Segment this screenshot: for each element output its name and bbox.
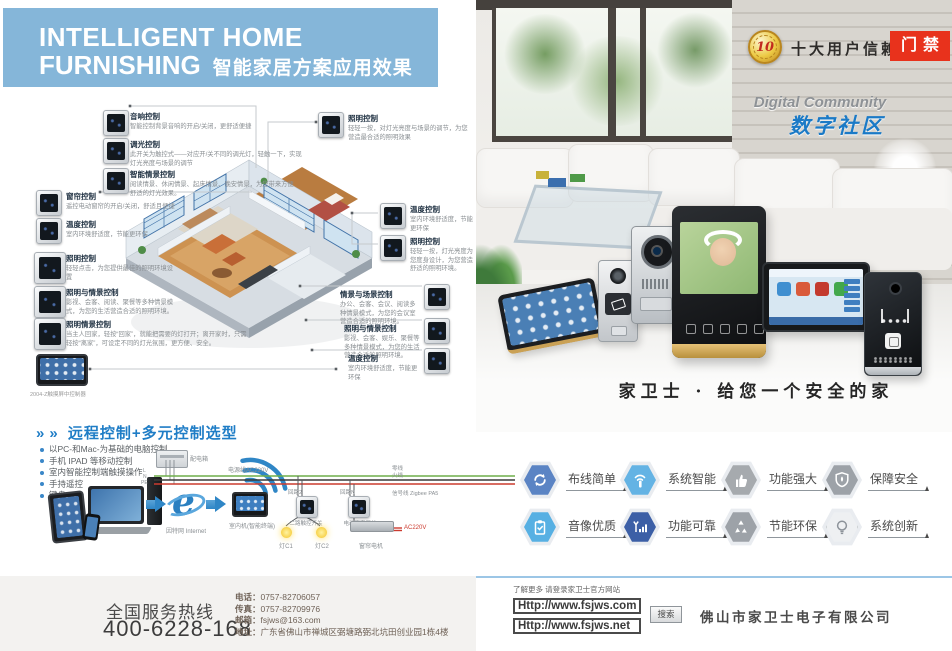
signal-icon: [631, 518, 649, 536]
book-stack: [548, 178, 566, 187]
tablet-caption: 2004-Z触摸屏中控制器: [30, 390, 120, 398]
annotation-title: 照明与情景控制: [66, 287, 184, 298]
switch-module: [424, 284, 450, 310]
feature-label: 系统智能: [666, 470, 724, 491]
contact-row: 电话：0757-82706057: [235, 592, 475, 604]
phase-pe-label: PE: [141, 480, 148, 486]
wire-end-label: 火线: [392, 471, 403, 479]
annotation-title: 情景与场景控制: [340, 289, 418, 300]
remote-section-title: »» 远程控制+多元控制选型: [36, 422, 238, 443]
bulb-icon: [833, 518, 851, 536]
wall-switch: [296, 496, 318, 518]
annotation: 情景与场景控制 办公、会客、会议、阅读多种情景模式，为您的会议室营造合适的照明环…: [340, 289, 418, 327]
lamp-icon: [316, 527, 327, 538]
annotation: 温度控制 室内环境舒适度，节能更环保: [66, 219, 186, 240]
access-control-tag: 门禁: [890, 31, 950, 61]
screen-toolbar: [769, 269, 863, 277]
lamp1-label: 灯C1: [274, 541, 298, 550]
chevrons-icon: »: [36, 425, 45, 442]
loop2-label: 回路2: [288, 488, 302, 496]
camera-icon: [889, 282, 902, 295]
search-button[interactable]: 搜索: [650, 606, 682, 623]
annotation-desc: 室内环境舒适度，节能更环保: [348, 365, 420, 382]
monitor-screen: [769, 269, 863, 325]
loopN-label: 回路N: [340, 488, 355, 496]
feature-label: 节能环保: [767, 517, 825, 538]
switch-module: [34, 318, 66, 350]
card-reader-panel: [605, 293, 631, 315]
feature-smart: 系统智能: [620, 460, 724, 500]
annotation-title: 温度控制: [348, 353, 420, 364]
living-room-photo: [476, 0, 952, 432]
hotline-number: 400-6228-168: [103, 616, 252, 642]
smart-touch-icon: [631, 471, 649, 489]
switch-module: [424, 348, 450, 374]
switch-module: [34, 252, 66, 284]
camera-icon: [610, 268, 626, 284]
feature-label: 音像优质: [566, 517, 624, 538]
book-stack: [570, 174, 585, 182]
annotation-desc: 室内环境舒适度，节能更环保: [410, 216, 474, 233]
switch1-label: 二路触控开关: [282, 519, 330, 527]
card-icon: [611, 298, 626, 311]
feature-reliable: 功能可靠: [620, 507, 724, 547]
switch-module: [103, 110, 129, 136]
call-button: [885, 333, 901, 349]
circular-arrows-icon: [531, 471, 549, 489]
annotation-title: 照明控制: [410, 236, 474, 247]
annotation: 照明与情景控制 影视、会客、阅读、聚餐等多种情景模式，为您的生活营造合适的照明环…: [66, 287, 184, 316]
digital-community-zh: 数字社区: [782, 110, 892, 140]
speaker-grill: [642, 279, 668, 289]
visitor-face: [710, 238, 736, 266]
wiring-diagram: [140, 460, 520, 540]
shield-icon: [833, 471, 851, 489]
annotation-desc: 轻轻一按，对灯光亮度与场景的调节，为您营造最合适的照明效果: [348, 125, 473, 142]
annotation-title: 音响控制: [130, 111, 295, 122]
wire-end-label: 信号线 Zigbee PA5: [392, 489, 438, 497]
annotation: 音响控制 智能控制背景音响的开启/关闭，更舒适便捷: [130, 111, 295, 132]
switch-module: [424, 318, 450, 344]
side-buttons: [844, 279, 860, 312]
feature-label: 保障安全: [868, 470, 926, 491]
app-icons: [777, 282, 848, 296]
switch-module: [36, 190, 62, 216]
motor-label: 窗帘电机: [348, 541, 394, 550]
feature-powerful: 功能强大: [721, 460, 825, 500]
wall-switch: [348, 496, 370, 518]
annotation-title: 调光控制: [130, 139, 302, 150]
feature-label: 布线简单: [566, 470, 624, 491]
feature-wiring: 布线简单: [520, 460, 624, 500]
call-button: [611, 326, 627, 336]
monitor-screen: [680, 222, 758, 294]
feature-innovative: 系统创新: [822, 507, 926, 547]
lamp2-label: 灯C2: [310, 541, 334, 550]
speaker-grill: [873, 357, 913, 363]
feature-eco: 节能环保: [721, 507, 825, 547]
switch-module: [380, 235, 406, 261]
annotation: 温度控制 室内环境舒适度，节能更环保: [348, 353, 420, 382]
annotation-title: 智能情景控制: [130, 169, 295, 180]
ac-label: AC220V: [404, 525, 426, 531]
annotation: 调光控制 此开关为触控式——对应开/关不同的调光灯，轻触一下，实现灯光亮度与场景…: [130, 139, 302, 168]
feature-label: 功能强大: [767, 470, 825, 491]
company-name: 佛山市家卫士电子有限公司: [700, 606, 892, 626]
annotation-title: 照明情景控制: [66, 319, 251, 330]
annotation-desc: 室内环境舒适度，节能更环保: [66, 231, 186, 240]
chevrons-icon: »: [49, 425, 58, 442]
annotation-title: 窗帘控制: [66, 191, 196, 202]
website-url-com[interactable]: Http://www.fsjws.com: [513, 598, 641, 614]
annotation-desc: 智能控制背景音响的开启/关闭，更舒适便捷: [130, 123, 295, 132]
gold-base: [672, 344, 766, 358]
annotation-title: 照明与情景控制: [344, 323, 420, 334]
annotation-title: 照明控制: [348, 113, 473, 124]
switch-module: [318, 112, 344, 138]
clipboard-icon: [531, 518, 549, 536]
annotation: 照明控制 轻轻点击，为您提供最佳的照明环境设置: [66, 253, 176, 282]
thumbs-up-icon: [732, 471, 750, 489]
product-indoor-monitor-gold: [672, 206, 766, 358]
camera-lens: [651, 245, 663, 257]
screen-statusbar: [769, 317, 863, 325]
annotation-desc: 影视、会客、阅读、聚餐等多种情景模式，为您的生活营造合适的照明环境。: [66, 299, 184, 316]
website-url-net[interactable]: Http://www.fsjws.net: [513, 618, 641, 634]
feature-label: 功能可靠: [666, 517, 724, 538]
annotation-desc: 当主人回家，轻按“回家”，就能把需要的灯打开；离开家时，只需轻按“离家”，可设定…: [66, 331, 251, 348]
card-slot: [640, 297, 672, 311]
contact-row: 传真：0757-82709976: [235, 604, 475, 616]
window: [492, 8, 744, 142]
switch-module: [36, 218, 62, 244]
annotation-desc: 轻轻点击，为您提供最佳的照明环境设置: [66, 265, 176, 282]
contact-row: 地址：广东省佛山市禅城区弼塘路弼北坑田创业园1栋4楼: [235, 627, 475, 639]
bullet-item: 以PC-和Mac-为基础的电脑控制: [40, 444, 240, 456]
product-door-station-tall: [864, 272, 922, 376]
recycle-icon: [732, 518, 750, 536]
feature-audio-video: 音像优质: [520, 507, 624, 547]
annotation-title: 温度控制: [410, 204, 474, 215]
speaker-bracket: [881, 309, 909, 323]
base-trim: [865, 367, 921, 375]
curtain-motor: [350, 521, 394, 532]
top10-medal-icon: 10: [748, 30, 782, 64]
annotation: 照明控制 轻轻一按，对灯光亮度与场景的调节，为您营造最合适的照明效果: [348, 113, 473, 142]
annotation-title: 照明控制: [66, 253, 176, 264]
switch-module: [103, 138, 129, 164]
book-stack: [536, 171, 549, 179]
brochure-page: INTELLIGENT HOME FURNISHING 智能家居方案应用效果: [0, 0, 952, 651]
annotation: 照明控制 轻轻一按，灯光亮度为您度身设计，为您营造舒适的照明环境。: [410, 236, 474, 274]
annotation-desc: 遥控电动窗帘的开启/关闭，舒适且便捷: [66, 203, 196, 212]
feature-secure: 保障安全: [822, 460, 926, 500]
annotation: 照明情景控制 当主人回家，轻按“回家”，就能把需要的灯打开；离开家时，只需轻按“…: [66, 319, 251, 348]
brand-slogan: 家卫士 · 给您一个安全的家: [586, 377, 926, 402]
switch-module: [34, 286, 66, 318]
lamp-icon: [281, 527, 292, 538]
website-hint: 了解更多 请登录家卫士官方网站: [513, 584, 620, 595]
product-indoor-monitor-tablet: [762, 262, 870, 332]
digital-community-en: Digital Community: [740, 94, 900, 111]
central-control-tablet: [36, 354, 88, 386]
sofa-cushion: [648, 148, 740, 206]
switch-module: [380, 203, 406, 229]
contact-row: 邮箱：fsjws@163.com: [235, 615, 475, 627]
touch-button-row: [686, 324, 764, 334]
annotation: 窗帘控制 遥控电动窗帘的开启/关闭，舒适且便捷: [66, 191, 196, 212]
annotation: 温度控制 室内环境舒适度，节能更环保: [410, 204, 474, 233]
contact-list: 电话：0757-82706057 传真：0757-82709976 邮箱：fsj…: [235, 592, 475, 638]
annotation-desc: 此开关为触控式——对应开/关不同的调光灯，轻触一下，实现灯光亮度与场景的调节: [130, 151, 302, 168]
annotation-title: 温度控制: [66, 219, 186, 230]
annotation-desc: 轻轻一按，灯光亮度为您度身设计，为您营造舒适的照明环境。: [410, 248, 474, 274]
feature-label: 系统创新: [868, 517, 926, 538]
